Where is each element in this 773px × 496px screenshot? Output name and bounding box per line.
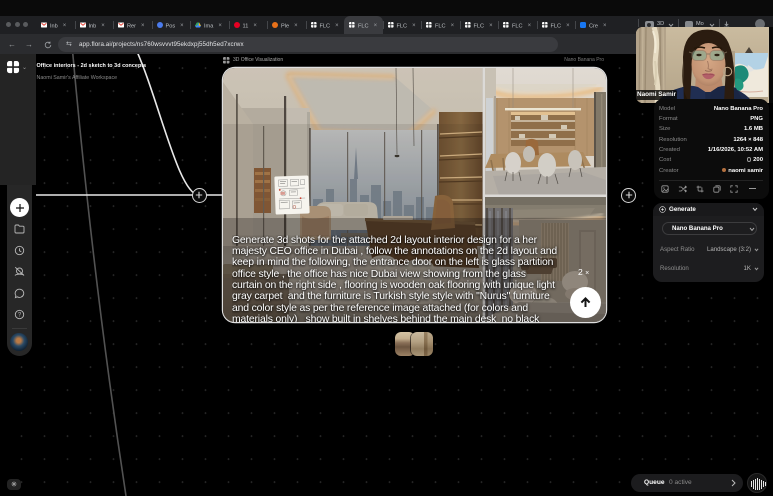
- svg-text:?: ?: [18, 313, 22, 319]
